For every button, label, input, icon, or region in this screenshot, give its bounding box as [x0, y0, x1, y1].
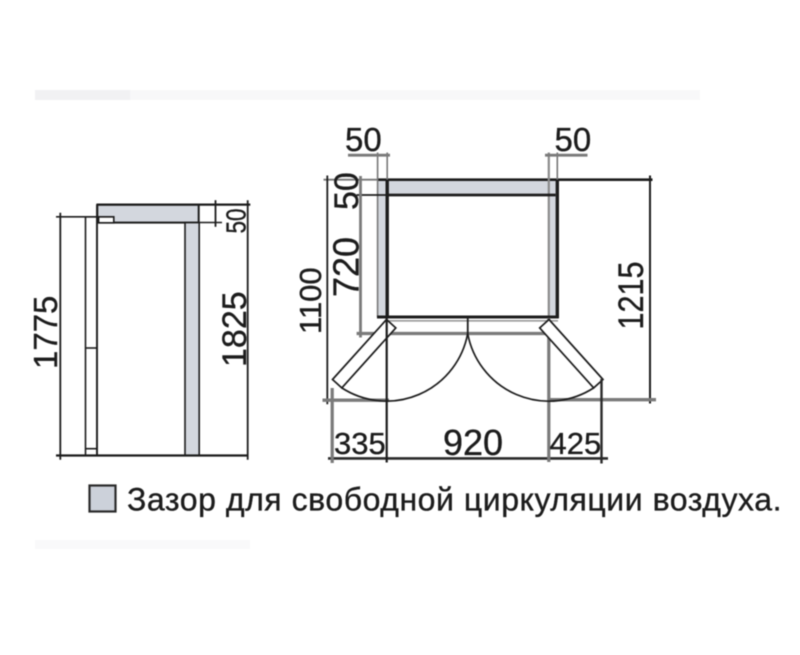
svg-text:Зазор для свободной циркуляции: Зазор для свободной циркуляции воздуха. [127, 482, 782, 518]
svg-text:1215: 1215 [612, 262, 651, 330]
svg-text:1775: 1775 [27, 296, 64, 369]
svg-text:425: 425 [550, 426, 602, 461]
svg-text:50: 50 [555, 121, 592, 158]
svg-text:720: 720 [326, 237, 367, 297]
svg-text:1825: 1825 [216, 291, 254, 367]
svg-text:920: 920 [443, 422, 503, 463]
svg-text:50: 50 [221, 209, 252, 234]
svg-text:1100: 1100 [293, 267, 328, 334]
svg-text:50: 50 [328, 172, 366, 210]
svg-text:50: 50 [345, 121, 382, 158]
svg-text:335: 335 [334, 426, 386, 461]
